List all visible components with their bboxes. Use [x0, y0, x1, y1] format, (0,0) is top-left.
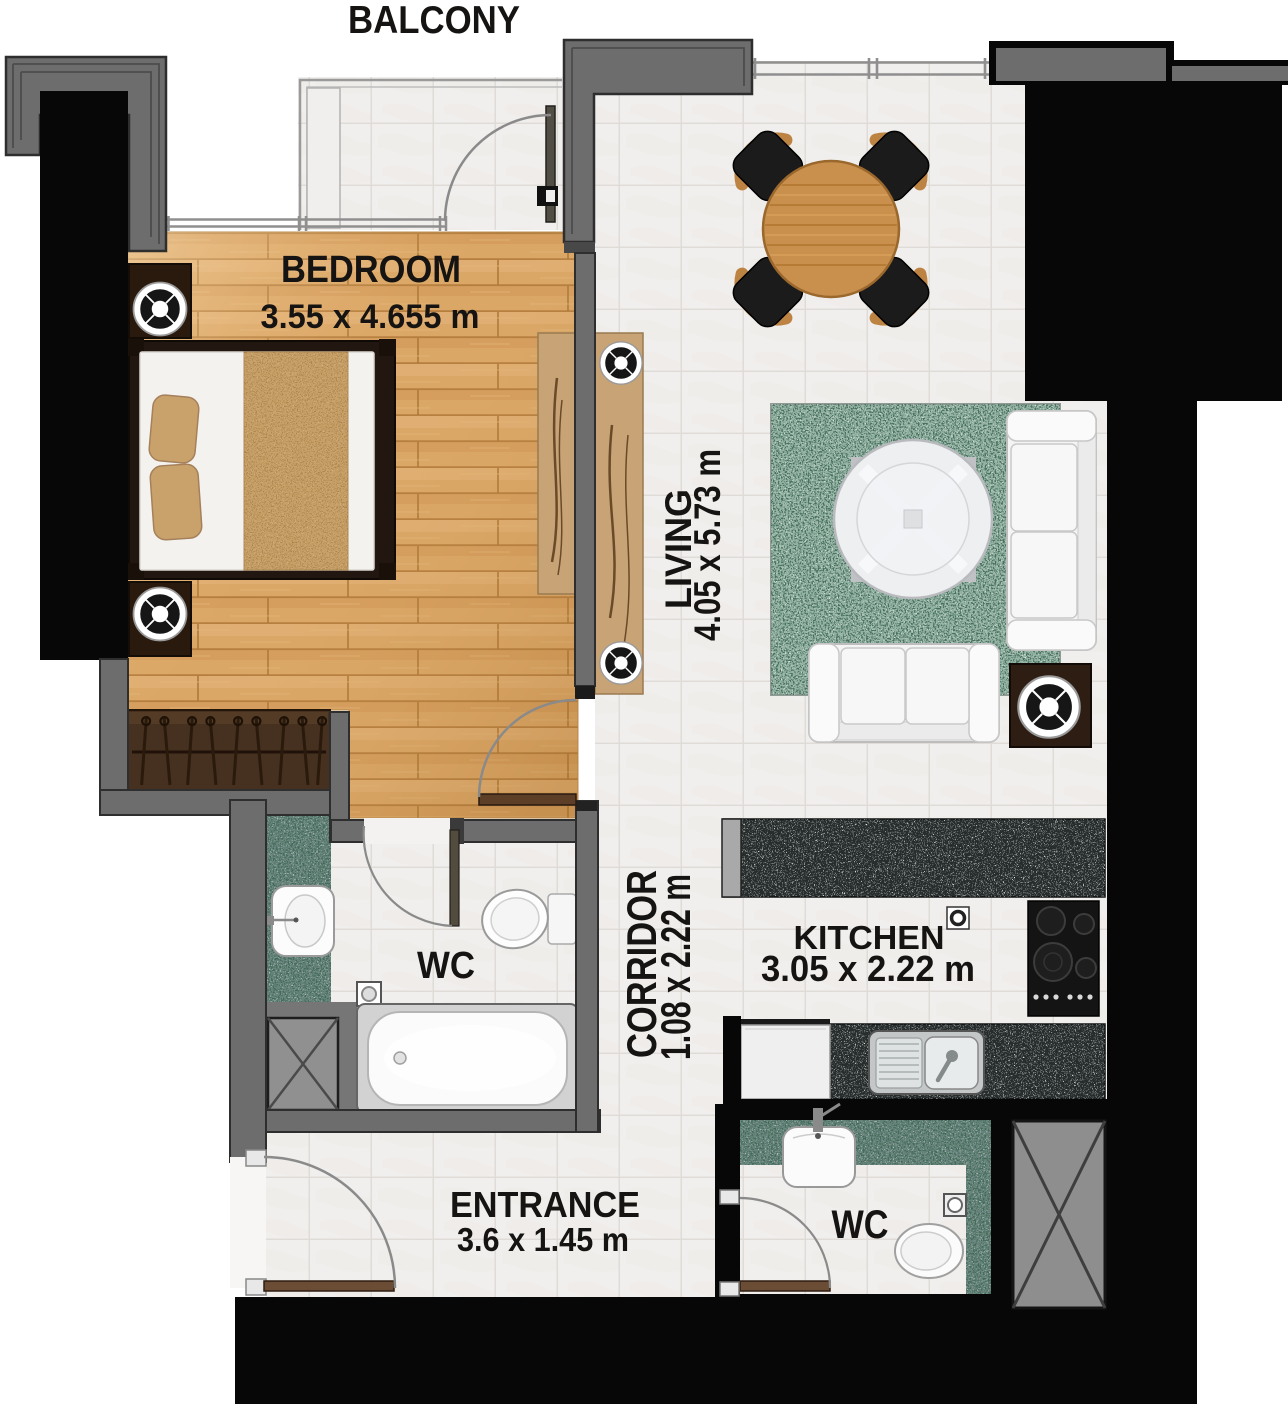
svg-text:WC: WC	[417, 945, 475, 987]
svg-text:3.6 x 1.45 m: 3.6 x 1.45 m	[457, 1221, 629, 1258]
svg-text:WC: WC	[832, 1203, 889, 1247]
svg-text:4.05 x 5.73 m: 4.05 x 5.73 m	[687, 449, 728, 641]
svg-text:3.55 x 4.655 m: 3.55 x 4.655 m	[261, 298, 480, 336]
svg-text:ENTRANCE: ENTRANCE	[450, 1184, 640, 1225]
svg-text:BEDROOM: BEDROOM	[281, 249, 461, 291]
svg-text:1.08 x 2.22 m: 1.08 x 2.22 m	[652, 874, 699, 1060]
svg-text:3.05 x 2.22 m: 3.05 x 2.22 m	[761, 948, 975, 989]
svg-text:BALCONY: BALCONY	[348, 0, 520, 42]
